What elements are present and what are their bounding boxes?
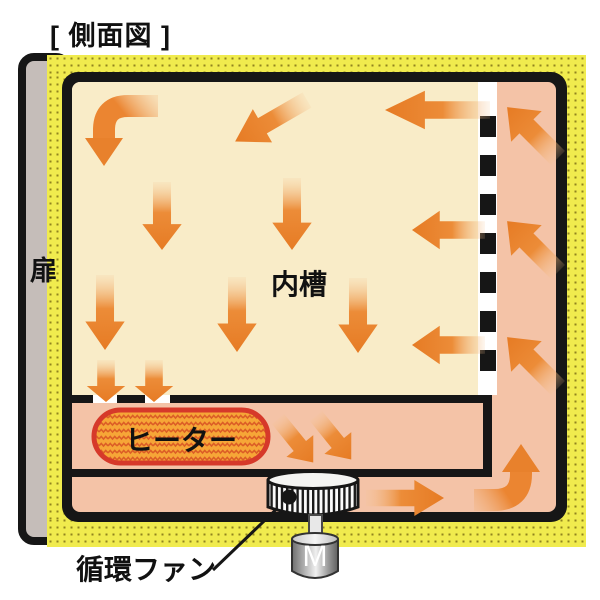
chamber-bottom-wall xyxy=(66,395,492,403)
chamber-bottom-wall-gap xyxy=(145,395,170,403)
diagram-canvas: [ 側面図 ] xyxy=(0,0,600,600)
door-label: 扉 xyxy=(30,249,57,288)
inner-chamber-label: 内槽 xyxy=(271,263,327,303)
door-insulation-strip xyxy=(47,74,63,520)
perforated-wall-dashes xyxy=(480,116,496,388)
motor-label: M xyxy=(299,540,331,574)
chamber-bottom-wall-gap xyxy=(93,395,117,403)
perforated-wall xyxy=(478,82,497,395)
inner-chamber xyxy=(72,82,478,395)
page-title: [ 側面図 ] xyxy=(50,14,171,53)
circulation-fan-label: 循環ファン xyxy=(76,548,216,588)
duct-divider-wall xyxy=(66,469,492,477)
heater-label: ヒーター xyxy=(94,419,268,459)
heater-compartment-right-wall xyxy=(483,395,492,477)
